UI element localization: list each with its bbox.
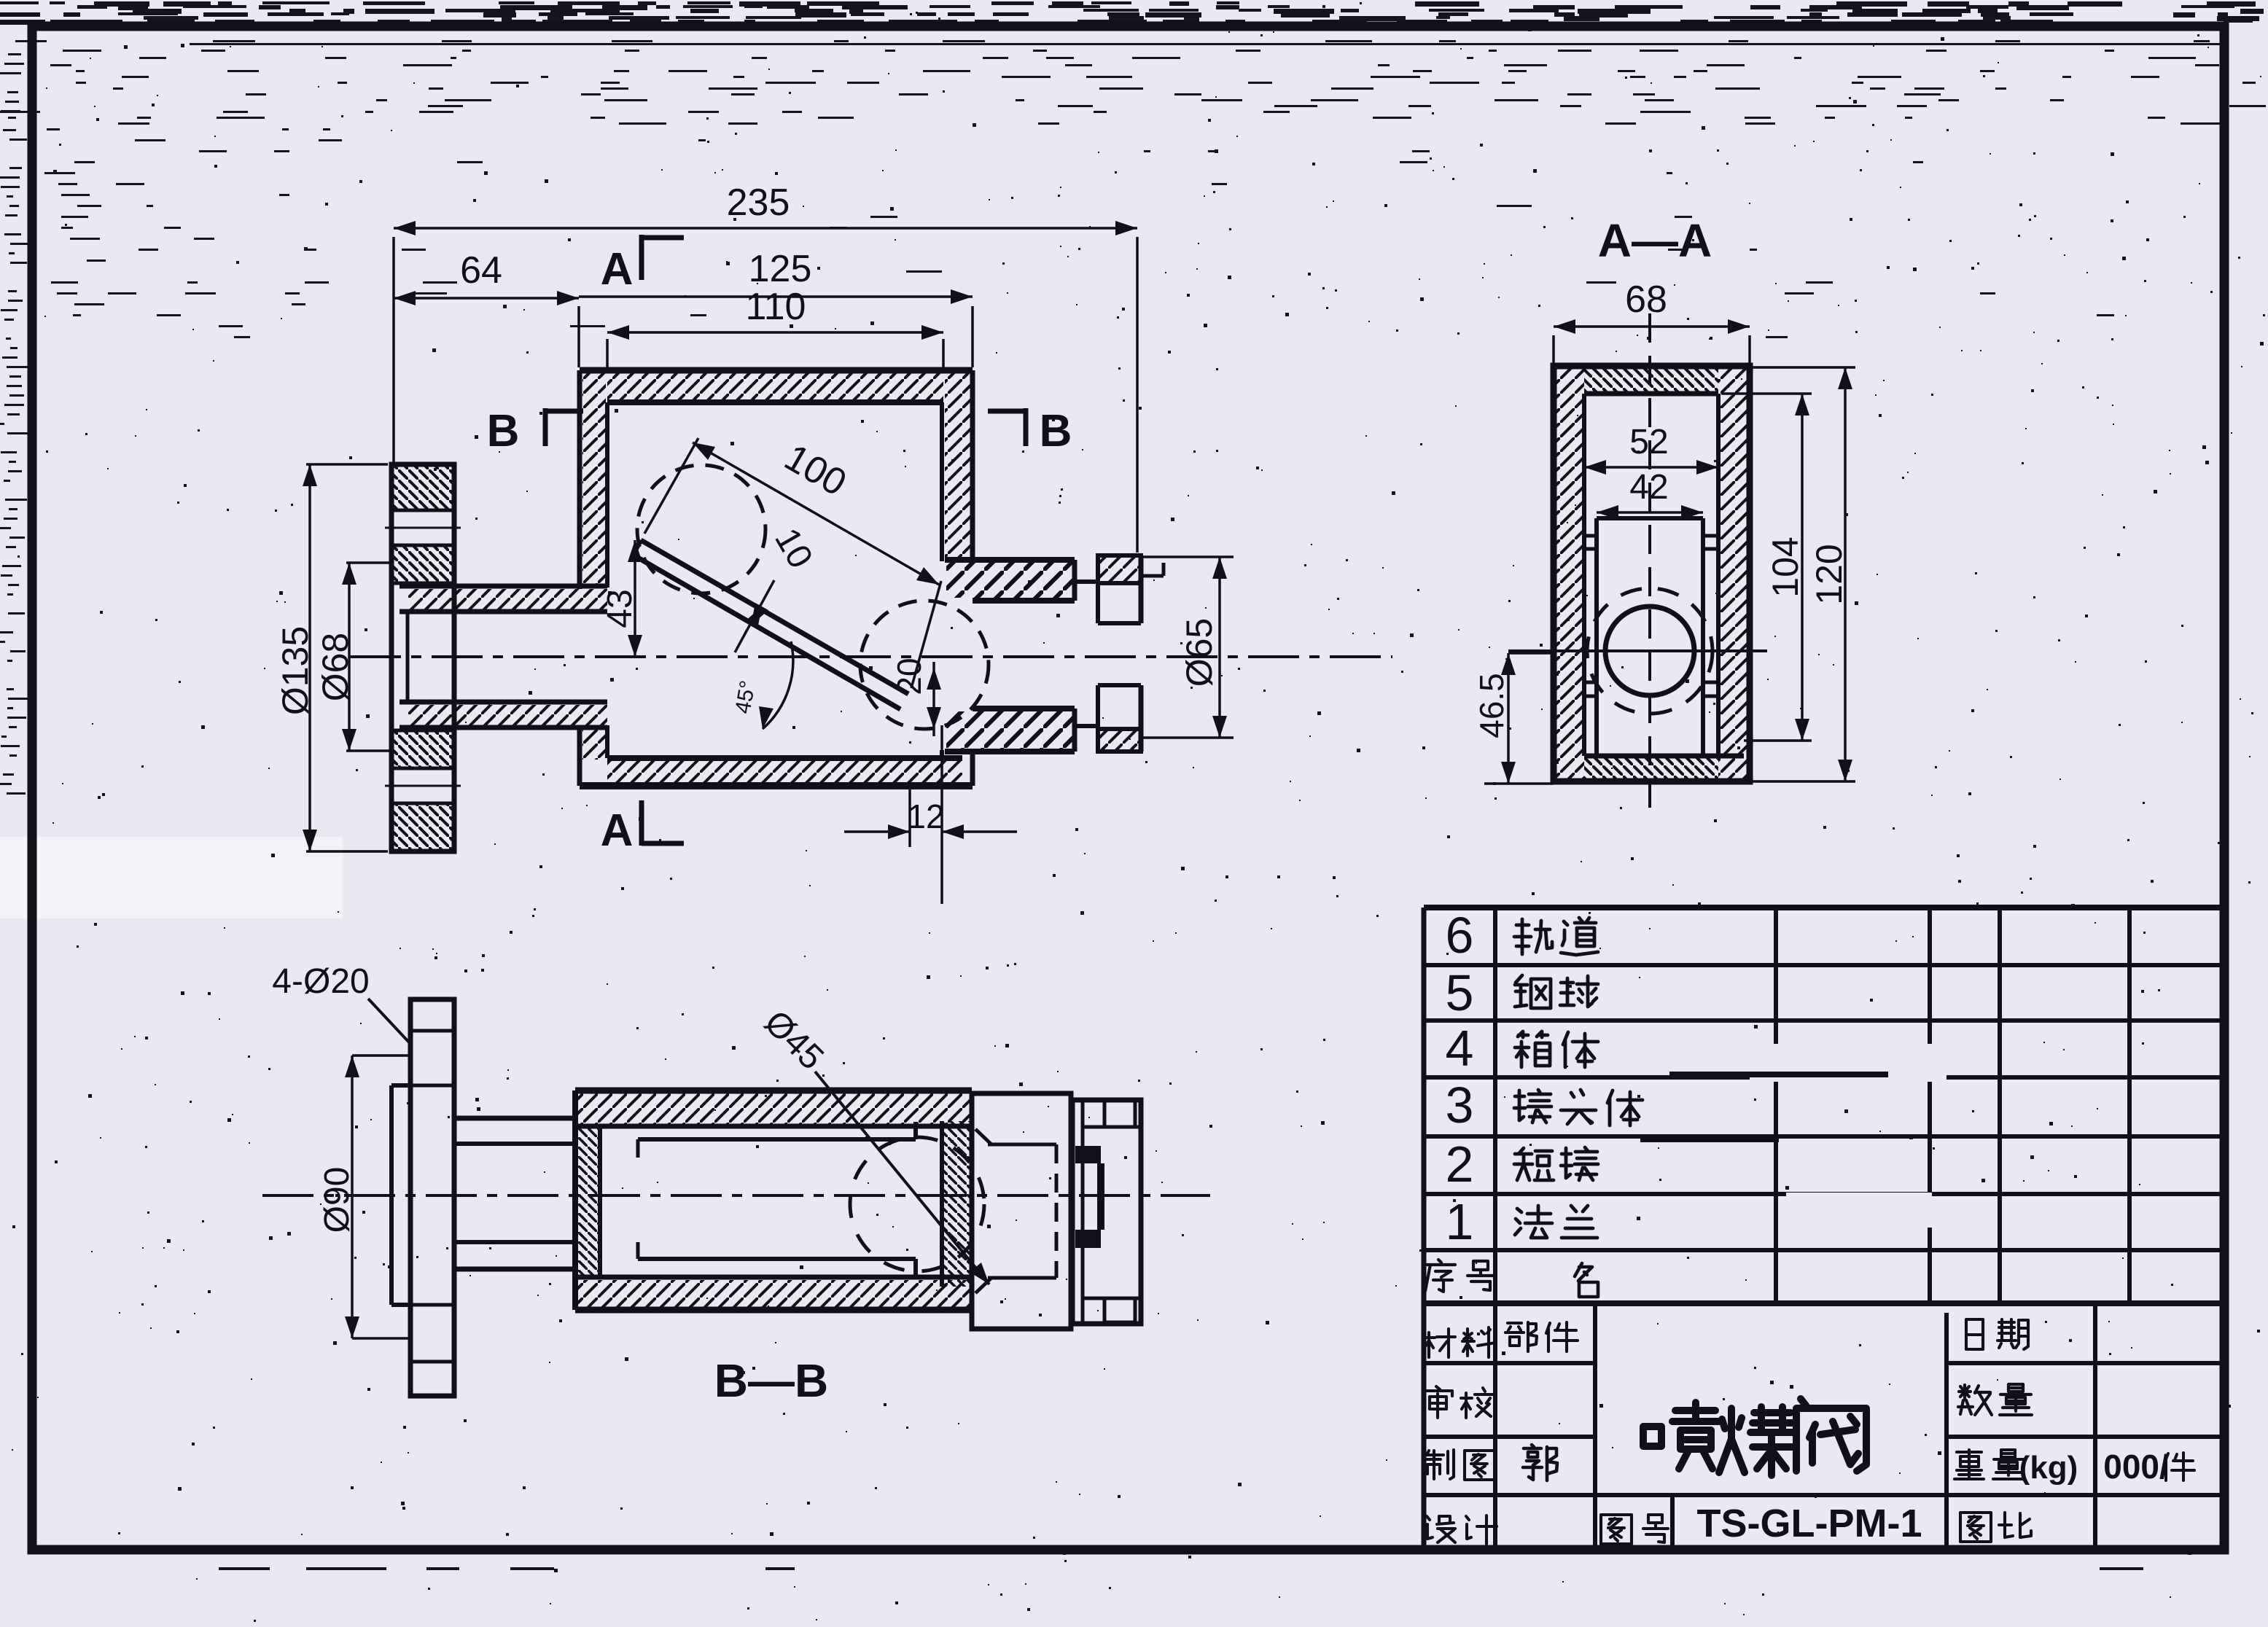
svg-text:4-Ø20: 4-Ø20 [272,962,369,1001]
svg-text:46.5: 46.5 [1473,673,1511,738]
svg-text:68: 68 [1625,278,1667,321]
svg-text:52: 52 [1629,423,1668,461]
svg-text:110: 110 [746,286,806,328]
svg-text:12: 12 [907,797,944,835]
svg-text:Ø90: Ø90 [318,1167,356,1233]
svg-text:6: 6 [1446,907,1474,964]
svg-text:104: 104 [1765,537,1806,597]
svg-text:5: 5 [1446,964,1474,1021]
svg-text:43: 43 [601,589,639,628]
svg-text:Ø65: Ø65 [1179,618,1220,687]
svg-text:B: B [1040,406,1072,456]
svg-text:1: 1 [1446,1193,1474,1250]
svg-text:Ø68: Ø68 [315,633,356,702]
svg-text:42: 42 [1629,468,1668,507]
svg-text:2: 2 [1446,1136,1474,1193]
svg-text:000/: 000/ [2103,1448,2169,1486]
svg-text:235: 235 [727,182,790,224]
svg-text:64: 64 [460,249,502,292]
svg-text:TS-GL-PM-1: TS-GL-PM-1 [1697,1502,1922,1545]
svg-text:4: 4 [1446,1020,1474,1077]
svg-text:120: 120 [1809,544,1850,604]
svg-text:B: B [487,406,520,456]
svg-text:A: A [601,244,634,294]
svg-text:20: 20 [890,658,928,695]
svg-text:(kg): (kg) [2019,1450,2078,1486]
svg-text:125: 125 [749,248,812,290]
svg-text:Ø135: Ø135 [275,626,316,715]
svg-text:B—B: B—B [714,1354,828,1407]
svg-text:A—A: A—A [1598,214,1712,267]
svg-text:3: 3 [1446,1077,1474,1134]
svg-text:A: A [601,805,634,856]
